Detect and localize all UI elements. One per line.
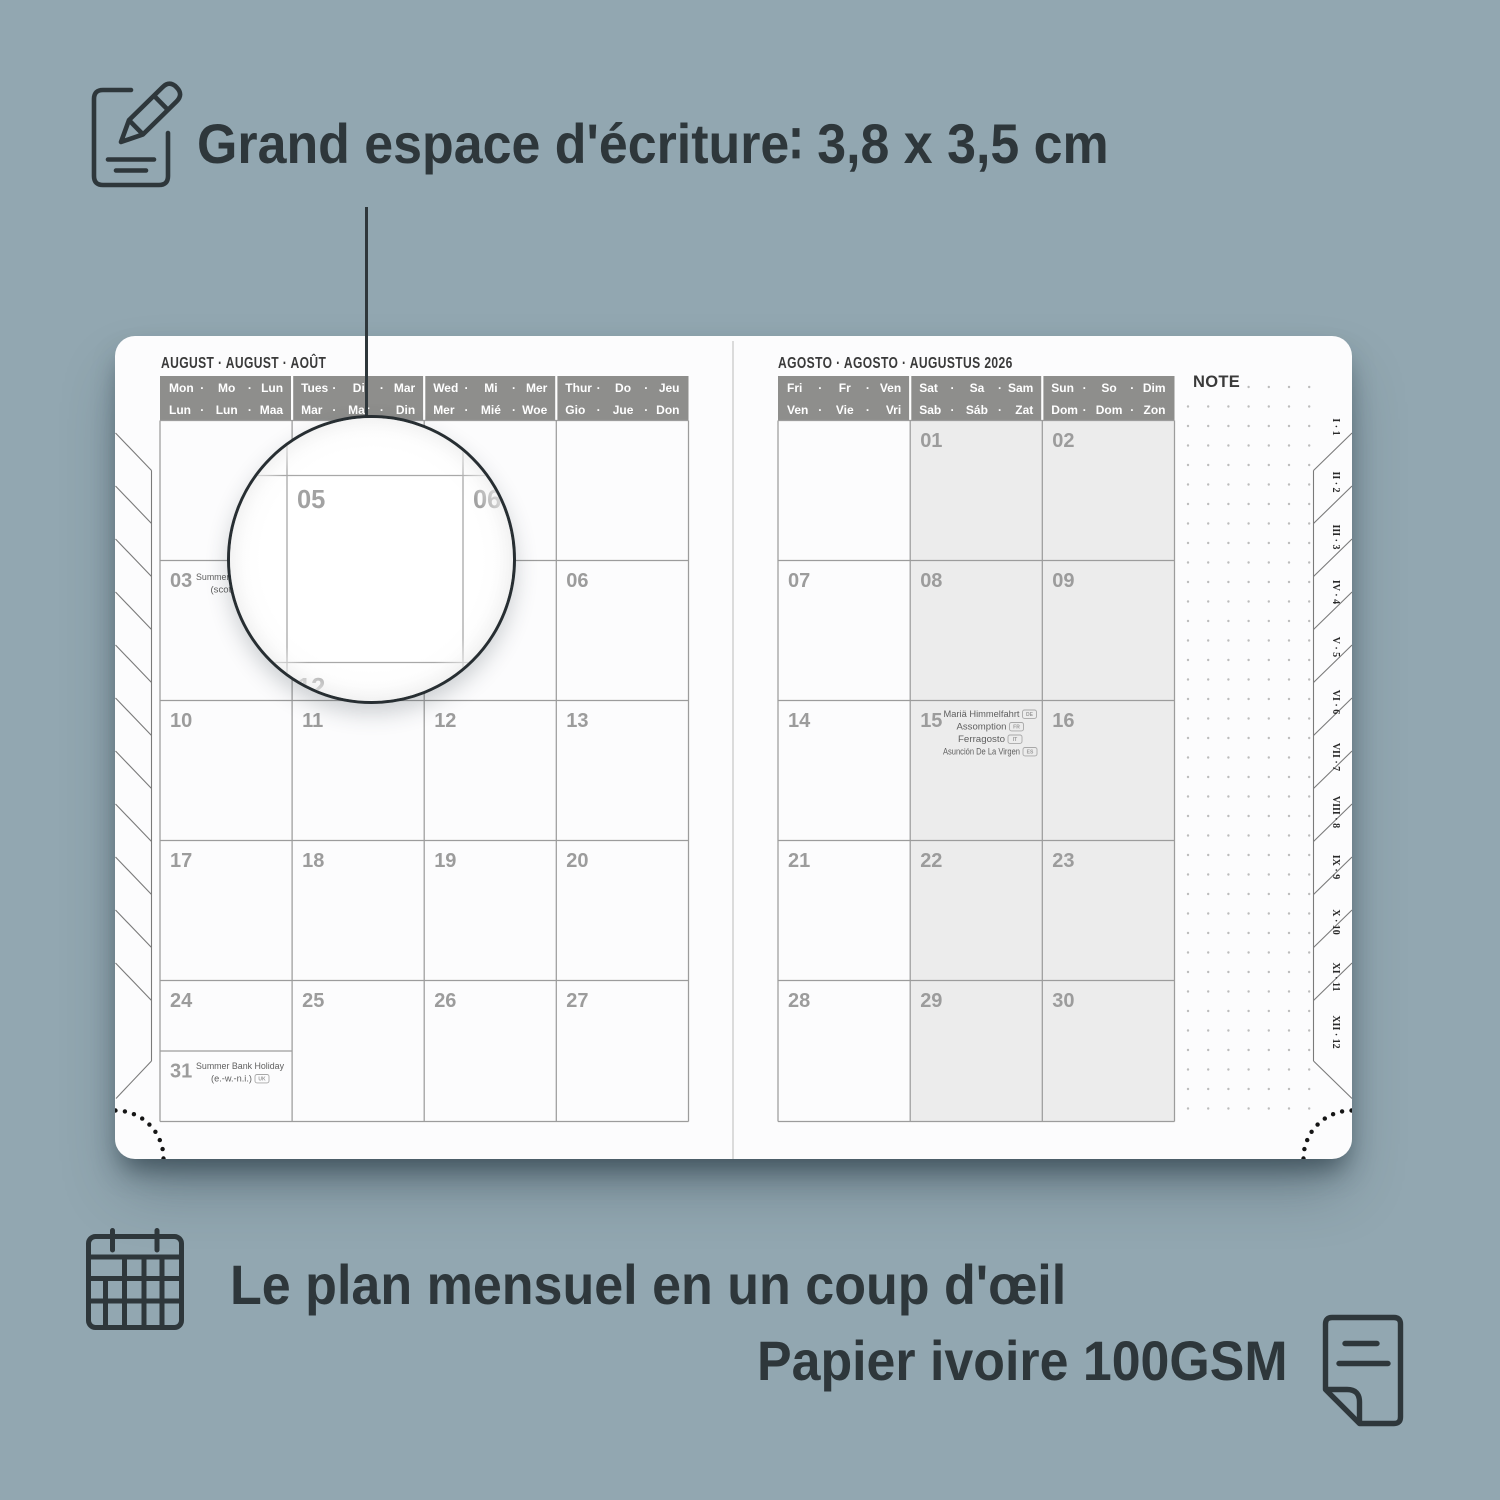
svg-text:·: ·: [1130, 403, 1134, 417]
svg-text:·: ·: [1130, 381, 1134, 395]
svg-text:07: 07: [788, 570, 810, 592]
svg-text:VII · 7: VII · 7: [1330, 743, 1341, 771]
svg-text:15: 15: [920, 710, 942, 732]
svg-text:Sat: Sat: [919, 381, 938, 395]
svg-text:Mi: Mi: [484, 381, 497, 395]
svg-text:Tues: Tues: [301, 381, 328, 395]
svg-text:Gio: Gio: [565, 403, 585, 417]
svg-text:10: 10: [170, 710, 192, 732]
svg-text:01: 01: [920, 430, 942, 452]
svg-text:13: 13: [566, 710, 588, 732]
svg-text:Mié: Mié: [481, 403, 501, 417]
svg-text:·: ·: [644, 381, 648, 395]
svg-text:Lun: Lun: [216, 403, 238, 417]
svg-text:VI · 6: VI · 6: [1330, 690, 1341, 714]
svg-text:·: ·: [248, 403, 252, 417]
svg-text:·: ·: [1083, 381, 1087, 395]
svg-text:·: ·: [818, 381, 822, 395]
svg-text:27: 27: [566, 990, 588, 1012]
svg-text:·: ·: [644, 403, 648, 417]
svg-text:·: ·: [464, 381, 468, 395]
svg-text:·: ·: [597, 403, 601, 417]
svg-text:Fr: Fr: [839, 381, 851, 395]
svg-text:·: ·: [998, 403, 1002, 417]
svg-text:NOTE: NOTE: [1193, 373, 1240, 391]
svg-text:14: 14: [788, 710, 811, 732]
svg-text:25: 25: [302, 990, 324, 1012]
svg-text:06: 06: [566, 570, 588, 592]
svg-text:Woe: Woe: [522, 403, 547, 417]
svg-text:Mar: Mar: [301, 403, 323, 417]
svg-text:Jeu: Jeu: [659, 381, 680, 395]
svg-text:29: 29: [920, 990, 942, 1012]
svg-text:Mer: Mer: [433, 403, 455, 417]
svg-text:08: 08: [920, 570, 942, 592]
svg-text:DE: DE: [1026, 712, 1034, 718]
svg-text:Vie: Vie: [836, 403, 854, 417]
svg-text:Jue: Jue: [613, 403, 634, 417]
svg-text:IT: IT: [1013, 737, 1017, 743]
svg-text:·: ·: [597, 381, 601, 395]
svg-text:Zon: Zon: [1144, 403, 1166, 417]
svg-text:Sa: Sa: [970, 381, 985, 395]
svg-text:Wed: Wed: [433, 381, 458, 395]
svg-text:11: 11: [302, 710, 323, 732]
svg-text:03: 03: [170, 570, 192, 592]
svg-text:Zat: Zat: [1015, 403, 1033, 417]
svg-text:Summer Bank Holiday: Summer Bank Holiday: [196, 1061, 284, 1071]
svg-text:Assomption: Assomption: [957, 722, 1007, 732]
svg-text:FR: FR: [1013, 725, 1020, 731]
svg-text:·: ·: [818, 403, 822, 417]
svg-text:Mariä Himmelfahrt: Mariä Himmelfahrt: [944, 709, 1021, 719]
svg-text:IX · 9: IX · 9: [1330, 855, 1341, 879]
svg-text:21: 21: [788, 850, 810, 872]
svg-text:Dom: Dom: [1051, 403, 1078, 417]
svg-text:·: ·: [332, 381, 336, 395]
svg-text:19: 19: [434, 850, 456, 872]
svg-text:ES: ES: [1027, 750, 1034, 756]
svg-text:(e.-w.-n.i.): (e.-w.-n.i.): [211, 1074, 252, 1084]
svg-text:AUGUST · AUGUST · AOÛT: AUGUST · AUGUST · AOÛT: [161, 352, 326, 371]
svg-text:So: So: [1101, 381, 1116, 395]
svg-text:26: 26: [434, 990, 456, 1012]
svg-text:·: ·: [380, 381, 384, 395]
svg-text:Mon: Mon: [169, 381, 194, 395]
svg-text:31: 31: [170, 1061, 192, 1083]
svg-text:·: ·: [512, 381, 516, 395]
svg-text:Mar: Mar: [394, 381, 416, 395]
svg-text:III · 3: III · 3: [1330, 524, 1341, 549]
svg-text:·: ·: [200, 381, 204, 395]
svg-text:22: 22: [920, 850, 942, 872]
svg-text:16: 16: [1052, 710, 1074, 732]
svg-text:Thur: Thur: [565, 381, 592, 395]
svg-text:Di: Di: [353, 381, 365, 395]
svg-text:I · 1: I · 1: [1330, 418, 1341, 435]
svg-text:Dom: Dom: [1096, 403, 1123, 417]
svg-text:Mer: Mer: [526, 381, 548, 395]
svg-text:20: 20: [566, 850, 588, 872]
svg-text:09: 09: [1052, 570, 1074, 592]
svg-text:·: ·: [332, 403, 336, 417]
svg-text:·: ·: [200, 403, 204, 417]
svg-text:Lun: Lun: [169, 403, 191, 417]
svg-text:Asunción De La Virgen: Asunción De La Virgen: [943, 747, 1020, 757]
svg-text:Vri: Vri: [886, 403, 901, 417]
svg-text:UK: UK: [258, 1077, 266, 1083]
svg-text:II · 2: II · 2: [1330, 471, 1341, 492]
svg-text:·: ·: [998, 381, 1002, 395]
svg-text:·: ·: [950, 403, 954, 417]
svg-text:Fri: Fri: [787, 381, 802, 395]
svg-text:Ven: Ven: [880, 381, 901, 395]
svg-text:XI · 11: XI · 11: [1330, 963, 1341, 992]
svg-text:Do: Do: [615, 381, 631, 395]
svg-text:Sab: Sab: [919, 403, 941, 417]
svg-text:Ven: Ven: [787, 403, 808, 417]
svg-text:Ferragosto: Ferragosto: [958, 734, 1005, 744]
svg-text:X · 10: X · 10: [1330, 909, 1341, 935]
svg-text:Don: Don: [656, 403, 679, 417]
svg-text:Sáb: Sáb: [966, 403, 988, 417]
svg-text:·: ·: [866, 381, 870, 395]
svg-text:Sun: Sun: [1051, 381, 1074, 395]
svg-text:·: ·: [1083, 403, 1087, 417]
svg-text:17: 17: [170, 850, 192, 872]
svg-text:VIII · 8: VIII · 8: [1330, 796, 1341, 828]
svg-text:Lun: Lun: [261, 381, 283, 395]
svg-text:·: ·: [248, 381, 252, 395]
svg-text:28: 28: [788, 990, 810, 1012]
svg-text:24: 24: [170, 990, 193, 1012]
svg-text:23: 23: [1052, 850, 1074, 872]
svg-text:·: ·: [512, 403, 516, 417]
svg-text:·: ·: [866, 403, 870, 417]
svg-text:12: 12: [434, 710, 456, 732]
svg-text:Din: Din: [396, 403, 415, 417]
svg-text:Mo: Mo: [218, 381, 235, 395]
svg-text:·: ·: [950, 381, 954, 395]
svg-text:IV · 4: IV · 4: [1330, 580, 1341, 604]
svg-text:AGOSTO · AGOSTO · AUGUSTUS 202: AGOSTO · AGOSTO · AUGUSTUS 2026: [778, 354, 1013, 372]
svg-text:30: 30: [1052, 990, 1074, 1012]
svg-text:Dim: Dim: [1143, 381, 1166, 395]
svg-text:Maa: Maa: [260, 403, 284, 417]
svg-text:V · 5: V · 5: [1330, 637, 1341, 657]
svg-text:Sam: Sam: [1008, 381, 1033, 395]
svg-text:02: 02: [1052, 430, 1074, 452]
svg-text:·: ·: [464, 403, 468, 417]
svg-text:18: 18: [302, 850, 324, 872]
svg-text:XII · 12: XII · 12: [1330, 1015, 1341, 1048]
